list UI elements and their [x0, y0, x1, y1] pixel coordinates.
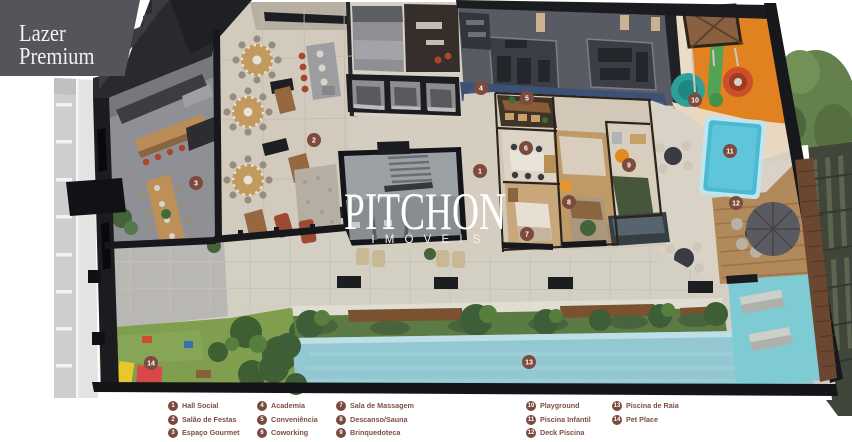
svg-text:2: 2: [312, 138, 316, 145]
svg-text:11: 11: [726, 149, 734, 156]
svg-text:1: 1: [478, 169, 482, 176]
svg-text:10: 10: [691, 98, 699, 105]
svg-text:5: 5: [525, 96, 529, 103]
svg-text:12: 12: [732, 201, 740, 208]
svg-text:6: 6: [524, 146, 528, 153]
svg-text:4: 4: [479, 86, 483, 93]
svg-text:3: 3: [194, 181, 198, 188]
svg-text:14: 14: [147, 361, 155, 368]
svg-text:7: 7: [525, 232, 529, 239]
svg-text:8: 8: [567, 200, 571, 207]
svg-text:13: 13: [525, 360, 533, 367]
svg-text:9: 9: [627, 163, 631, 170]
